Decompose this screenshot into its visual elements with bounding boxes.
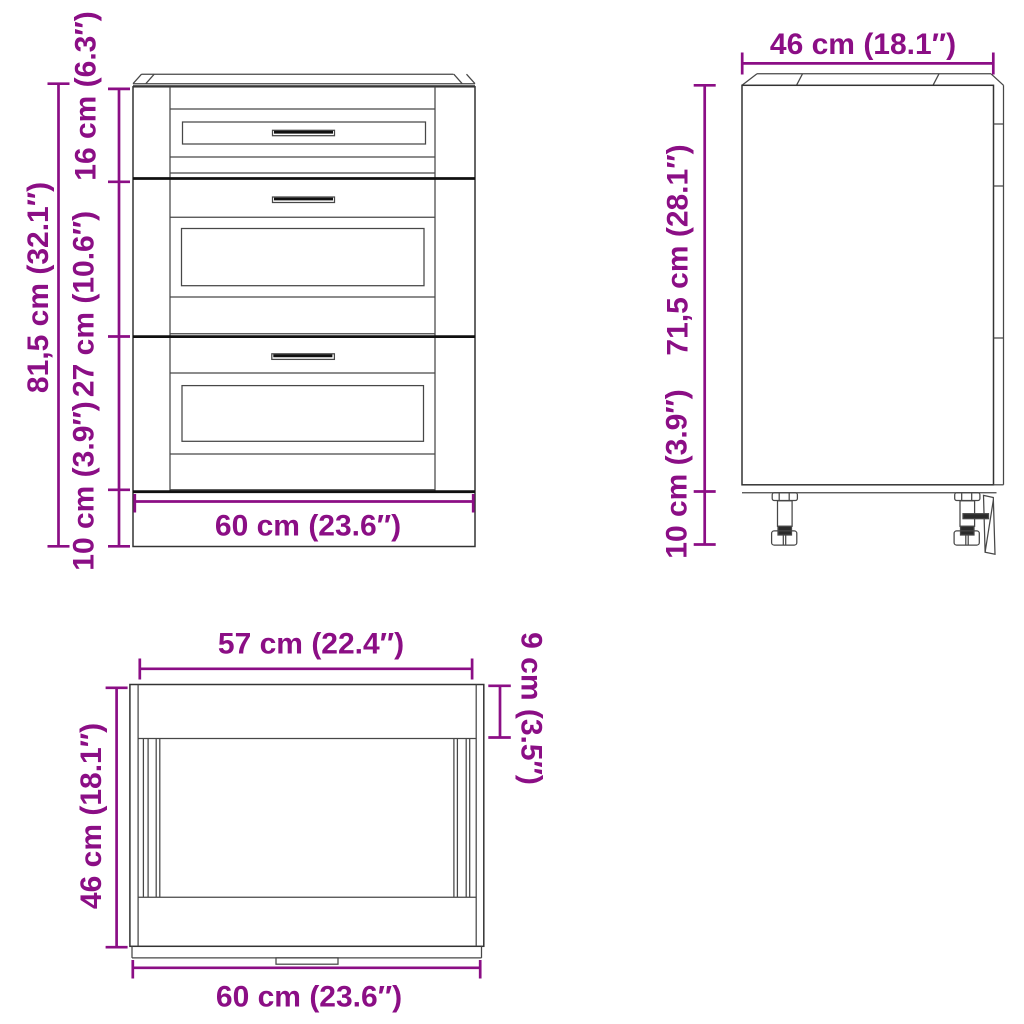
svg-text:60 cm (23.6″): 60 cm (23.6″) [216,981,402,1014]
svg-text:9 cm (3.5″): 9 cm (3.5″) [515,632,548,785]
svg-text:27 cm (10.6″): 27 cm (10.6″) [68,211,101,397]
svg-text:10 cm (3.9″): 10 cm (3.9″) [661,389,694,558]
svg-text:46 cm (18.1″): 46 cm (18.1″) [75,723,108,909]
svg-text:71,5 cm (28.1″): 71,5 cm (28.1″) [662,144,695,355]
svg-text:16 cm (6.3″): 16 cm (6.3″) [70,11,103,180]
svg-text:57 cm (22.4″): 57 cm (22.4″) [218,628,404,661]
svg-text:81,5 cm (32.1″): 81,5 cm (32.1″) [22,182,55,393]
svg-text:60 cm (23.6″): 60 cm (23.6″) [215,510,401,543]
svg-text:46 cm (18.1″): 46 cm (18.1″) [770,28,956,61]
svg-text:10 cm (3.9″): 10 cm (3.9″) [68,401,101,570]
